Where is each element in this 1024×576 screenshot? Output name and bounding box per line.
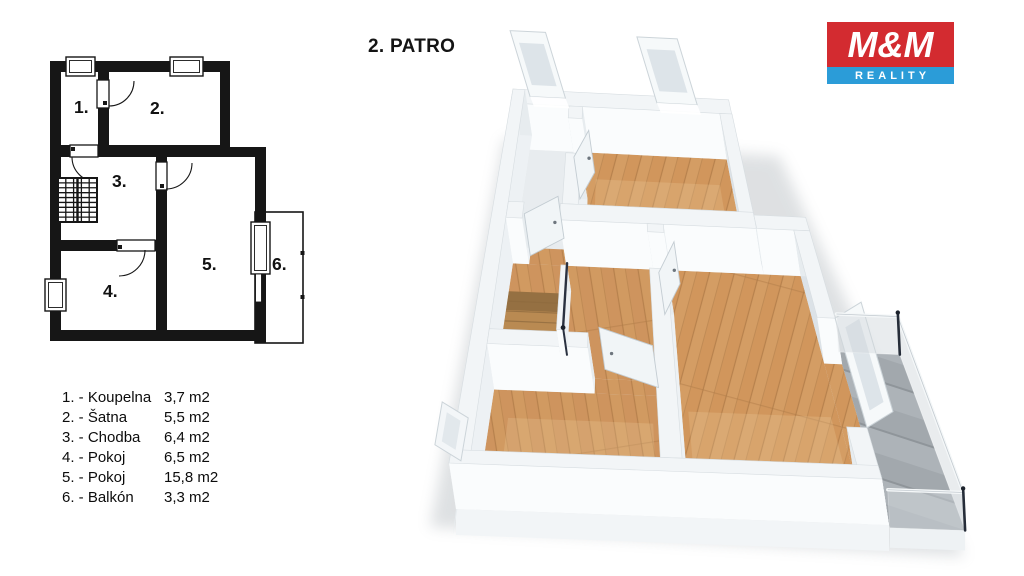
mm-reality-logo: M&M REALITY xyxy=(827,22,954,84)
logo-mm-text: M&M xyxy=(827,22,954,67)
legend-room-name: 6. - Balkón xyxy=(62,488,164,508)
legend-room-area: 5,5 m2 xyxy=(164,408,210,428)
legend-room-name: 3. - Chodba xyxy=(62,428,164,448)
legend-room-name: 5. - Pokoj xyxy=(62,468,164,488)
real-estate-floorplan-image: 2. PATRO 1.2.3.4.5.6. xyxy=(0,0,1024,576)
legend-room-area: 3,3 m2 xyxy=(164,488,210,508)
legend-room-name: 4. - Pokoj xyxy=(62,448,164,468)
legend-row: 2. - Šatna5,5 m2 xyxy=(62,408,218,428)
legend-room-name: 2. - Šatna xyxy=(62,408,164,428)
legend-room-area: 3,7 m2 xyxy=(164,388,210,408)
legend-room-area: 6,5 m2 xyxy=(164,448,210,468)
legend-row: 5. - Pokoj15,8 m2 xyxy=(62,468,218,488)
legend-room-area: 15,8 m2 xyxy=(164,468,218,488)
legend-row: 1. - Koupelna3,7 m2 xyxy=(62,388,218,408)
legend-room-area: 6,4 m2 xyxy=(164,428,210,448)
legend-row: 4. - Pokoj6,5 m2 xyxy=(62,448,218,468)
legend-row: 6. - Balkón3,3 m2 xyxy=(62,488,218,508)
legend-row: 3. - Chodba6,4 m2 xyxy=(62,428,218,448)
room-legend: 1. - Koupelna3,7 m22. - Šatna5,5 m23. - … xyxy=(62,388,218,508)
logo-reality-text: REALITY xyxy=(827,67,954,84)
legend-room-name: 1. - Koupelna xyxy=(62,388,164,408)
